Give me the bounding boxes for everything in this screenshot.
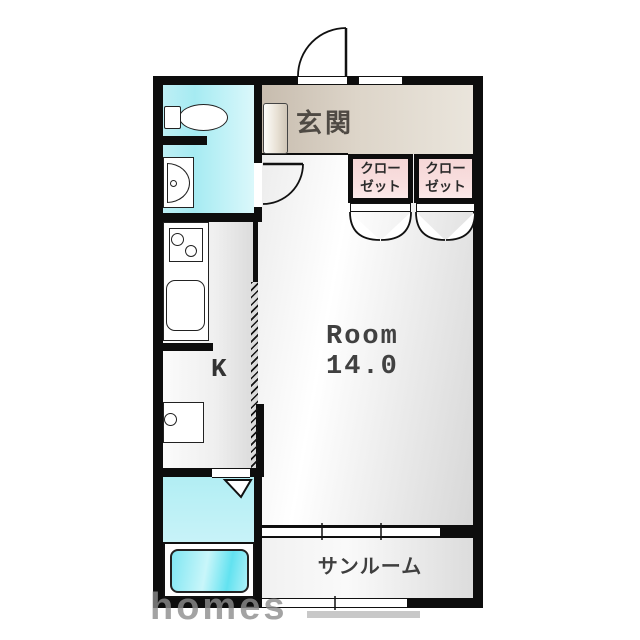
- wall-kitchen-room-upper: [253, 222, 258, 282]
- sunroom-inner-window: [262, 527, 440, 537]
- bathroom-door-opening: [212, 468, 250, 478]
- main-room-size: 14.0: [326, 352, 399, 382]
- toilet-tank-icon: [164, 106, 181, 129]
- genkan-floor: [262, 85, 473, 154]
- closet-2-door-sill: [416, 203, 475, 212]
- wall-left: [153, 76, 163, 608]
- washbasin-drain-icon: [170, 180, 177, 187]
- accordion-partition: [251, 282, 258, 468]
- watermark-text: homes: [150, 586, 287, 629]
- wall-kitchen-stub: [163, 343, 213, 351]
- closet-1-door-sill: [350, 203, 411, 212]
- floorplan-canvas: クロー ゼット クロー ゼット 玄関: [0, 0, 640, 640]
- wall-washroom-bottom: [163, 213, 262, 222]
- kitchen-label: K: [211, 354, 227, 384]
- stove-burner-icon: [171, 233, 184, 246]
- closet-1-label: クロー ゼット: [351, 160, 410, 195]
- genkan-label: 玄関: [296, 103, 354, 140]
- main-room-name: Room: [326, 322, 399, 352]
- toilet-icon: [179, 104, 228, 131]
- wall-toilet-divider: [163, 136, 207, 145]
- sunroom-label: サンルーム: [300, 550, 440, 579]
- closet-2-label: クロー ゼット: [416, 160, 475, 195]
- watermark-smear: [307, 611, 420, 618]
- kitchen-sink-icon: [166, 280, 205, 331]
- stove-burner-icon: [185, 245, 197, 257]
- entrance-door-arc: [298, 28, 346, 76]
- entrance-door-opening: [298, 76, 347, 85]
- main-room-label: Room 14.0: [326, 322, 399, 382]
- washroom-door-opening: [254, 163, 262, 207]
- washing-machine-drain-icon: [164, 413, 177, 426]
- entrance-window: [358, 76, 403, 85]
- shoe-cabinet-icon: [263, 103, 288, 154]
